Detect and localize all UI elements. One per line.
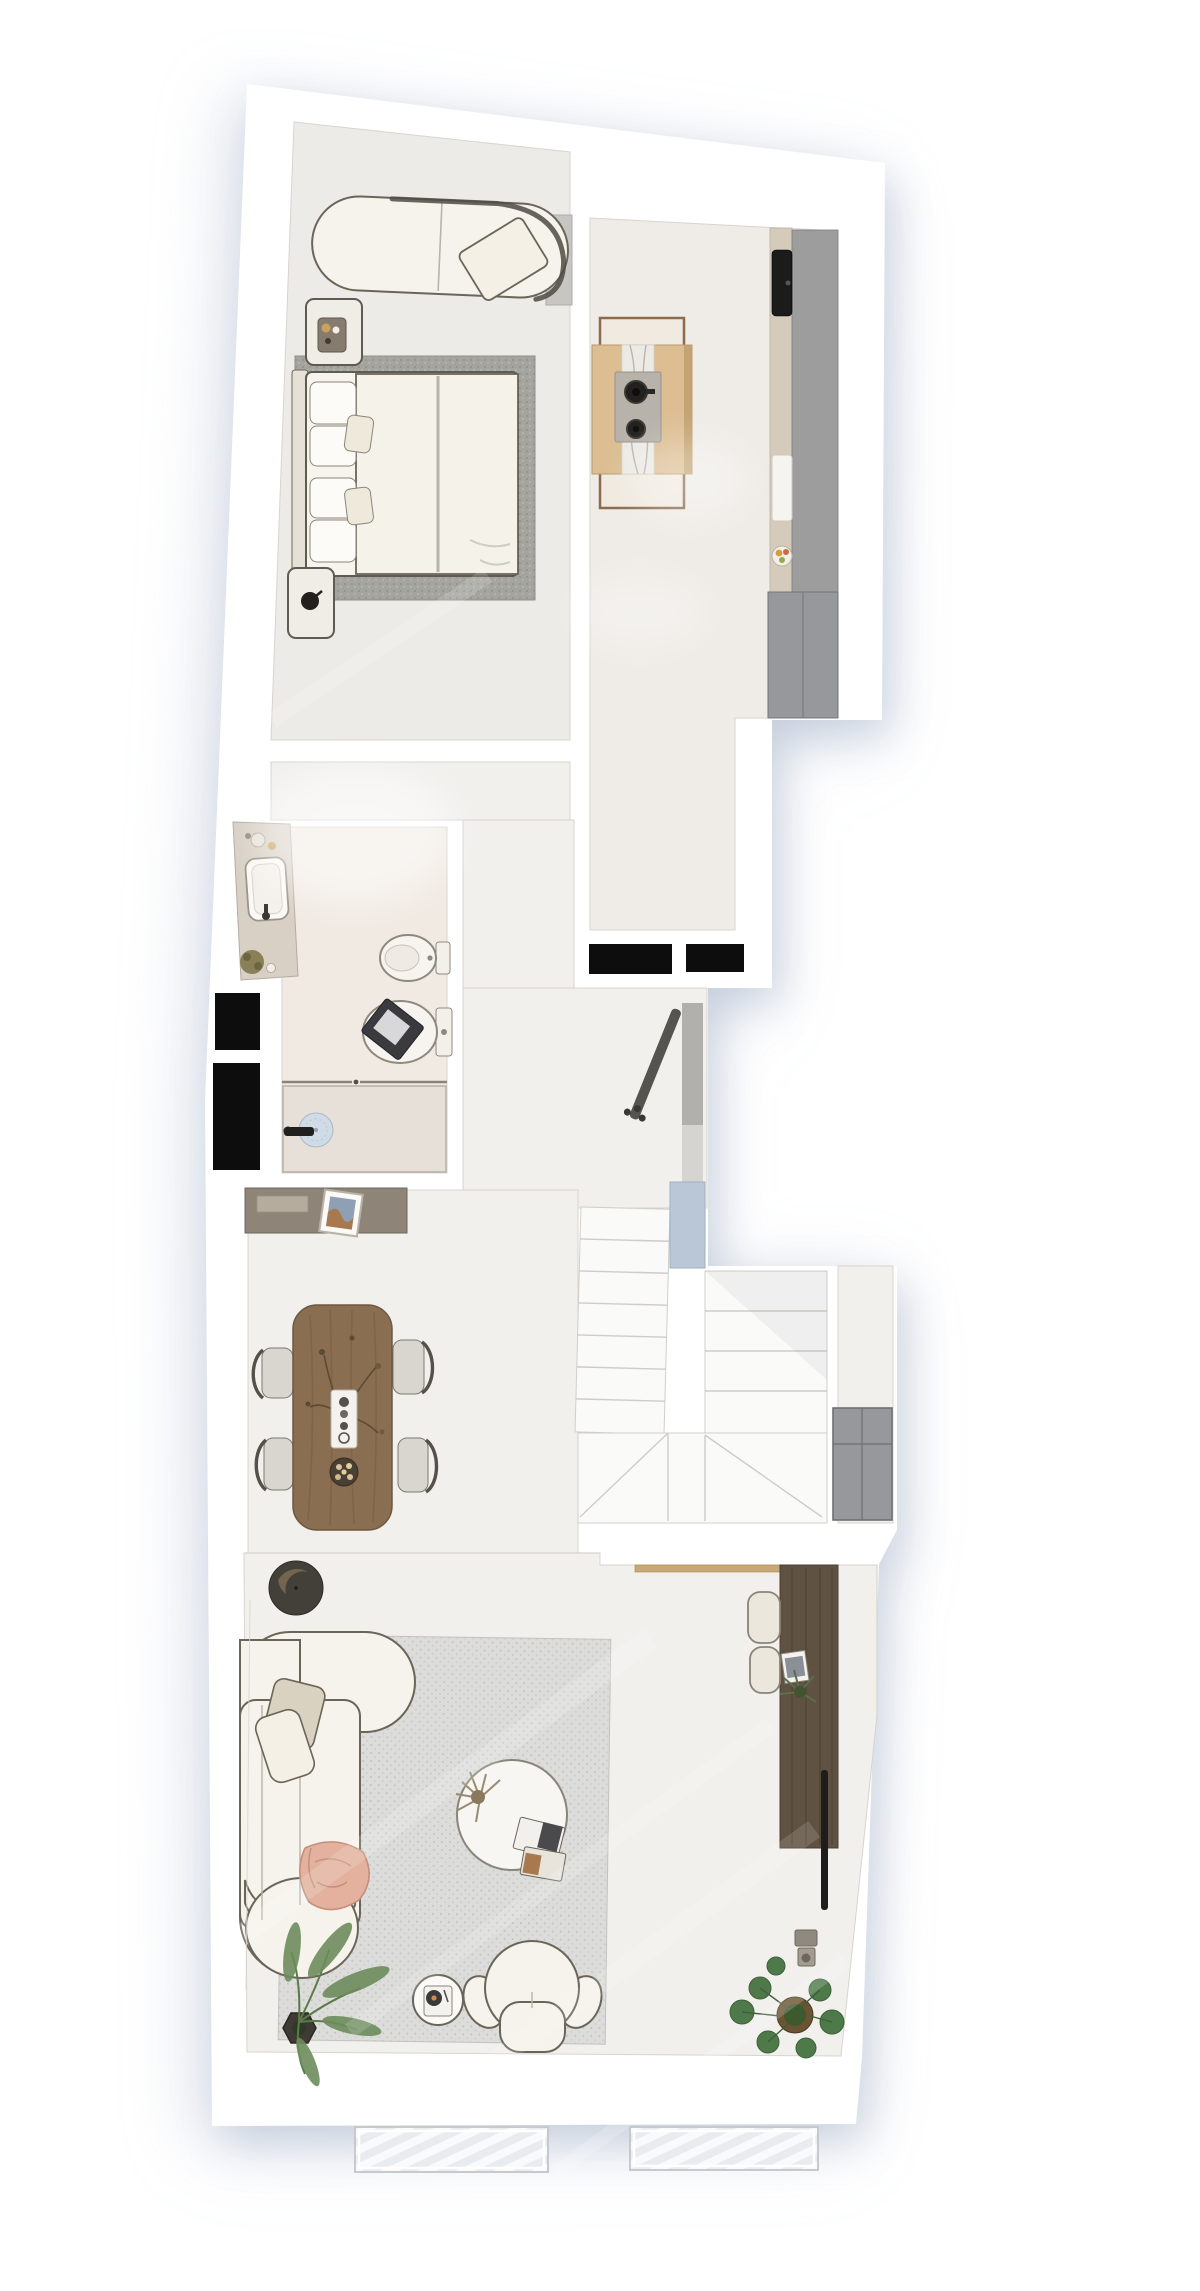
tall-cabinet-unit [768, 592, 838, 718]
sideboard-console [245, 1188, 407, 1236]
shower [282, 1080, 447, 1172]
wall-ledge [635, 1565, 780, 1572]
desk-stool [750, 1647, 780, 1693]
floor-planter-bowl [269, 1561, 323, 1615]
framed-artwork [319, 1190, 362, 1237]
cutting-board [772, 455, 792, 521]
upper-flight [705, 1271, 827, 1433]
stair-skylight-glass [670, 1182, 705, 1268]
lower-flight [575, 1207, 670, 1434]
counter-run [768, 228, 838, 718]
winder-treads [578, 1433, 827, 1523]
glass-partition [682, 1003, 703, 1125]
service-shaft [213, 1063, 260, 1170]
entrance-mat [589, 944, 672, 974]
fruit-bowl [772, 546, 792, 566]
floorplan-canvas [0, 0, 1200, 2291]
double-bed [292, 370, 518, 578]
room-bedroom [288, 194, 572, 638]
floorplan-rendering [0, 0, 1200, 2291]
entrance-mat [686, 944, 744, 972]
nightstand [288, 568, 334, 638]
door-hardware [795, 1930, 817, 1966]
desk-stool [748, 1592, 780, 1643]
pavement-grate [630, 2127, 818, 2170]
shower-mixer [284, 1127, 315, 1137]
pavement-grate [355, 2127, 548, 2172]
bidet [380, 935, 450, 981]
daybed-chaise [310, 194, 570, 305]
wall-desk [780, 1565, 838, 1848]
cooktop-two-burners [615, 372, 661, 442]
dining-table [293, 1305, 392, 1530]
nightstand [306, 299, 362, 365]
decor-tray [318, 318, 346, 352]
sliding-door-track [821, 1770, 828, 1910]
service-shaft [215, 993, 260, 1050]
pastry-plate [330, 1458, 358, 1486]
storage-cabinet [833, 1408, 892, 1520]
serving-tray [331, 1390, 357, 1448]
